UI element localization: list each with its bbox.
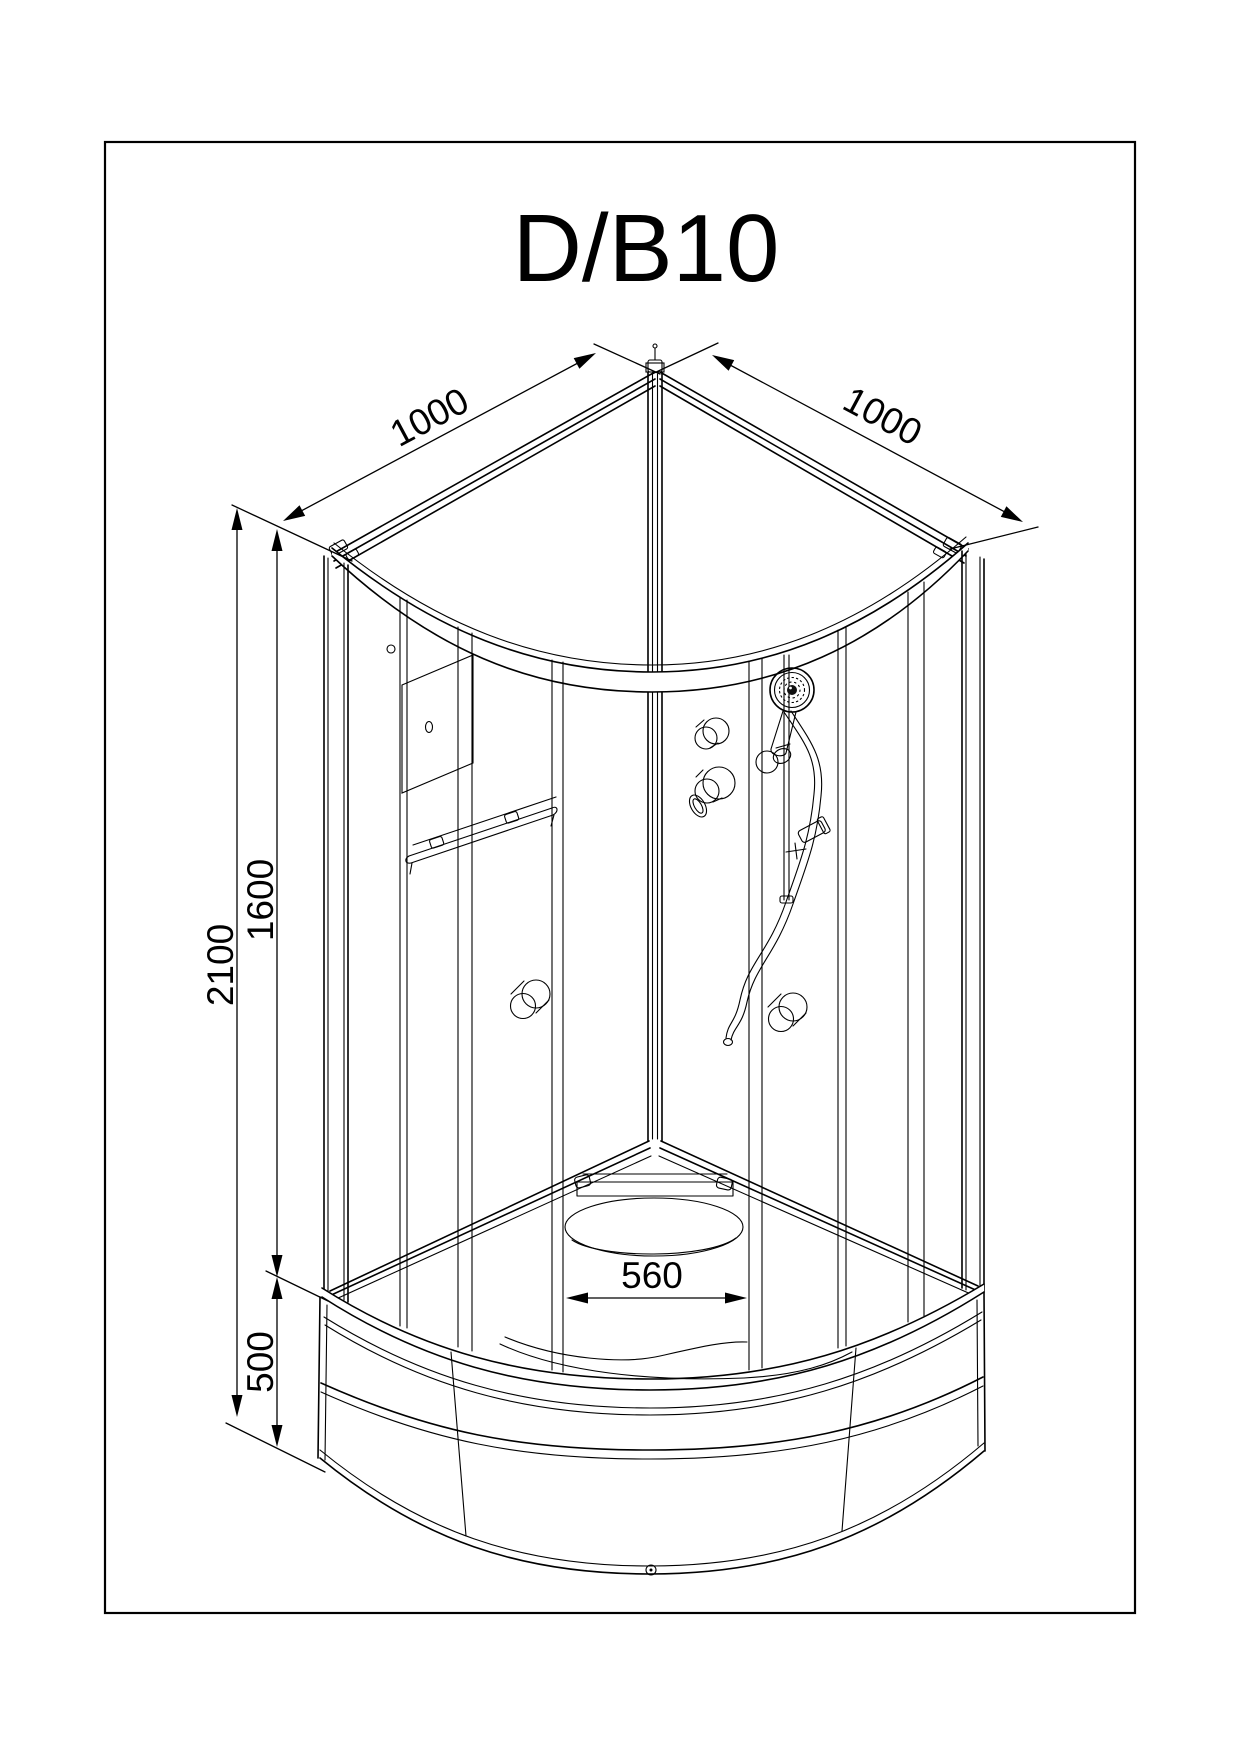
dimension-cabin-height-1600: 1600 — [240, 529, 283, 1277]
shower-head — [770, 668, 814, 712]
dimension-inner-width-560: 560 — [566, 1255, 747, 1304]
dimension-total-height-2100: 2100 — [200, 508, 243, 1417]
seat-edge — [505, 1337, 747, 1360]
back-threshold — [574, 1174, 733, 1196]
drawing-title: D/B10 — [513, 195, 780, 302]
dim-label-total-height: 2100 — [200, 924, 241, 1006]
corner-shelf — [406, 797, 557, 874]
body-jet-right — [768, 993, 807, 1032]
dimension-top-right-1000: 1000 — [712, 355, 1023, 522]
diverter-knob — [703, 718, 729, 744]
mixer-lever — [686, 792, 710, 820]
tray-floor-recess — [565, 1198, 743, 1256]
side-edge-profiles — [324, 551, 984, 1302]
front-arc-rail — [332, 537, 968, 692]
mixer-knobs — [686, 718, 735, 820]
technical-drawing-page: D/B10 — [0, 0, 1240, 1755]
hand-shower-assembly — [724, 655, 831, 1046]
dim-label-cabin-height: 1600 — [240, 859, 281, 941]
shower-hose — [724, 711, 822, 1046]
dim-label-top-right: 1000 — [837, 379, 929, 454]
dim-label-top-left: 1000 — [383, 380, 475, 455]
dim-label-tray-height: 500 — [240, 1331, 281, 1393]
dim-label-inner-width: 560 — [621, 1255, 683, 1296]
corner-post — [646, 363, 664, 1141]
apex-cap — [648, 344, 662, 372]
dimension-top-left-1000: 1000 — [283, 353, 596, 521]
wall-hook — [387, 645, 395, 653]
shower-cabin-drawing — [318, 344, 985, 1575]
shower-tray — [318, 1284, 985, 1575]
shower-cabin-dimension-diagram: D/B10 — [0, 0, 1240, 1755]
body-jet-left — [511, 980, 551, 1019]
dimension-tray-height-500: 500 — [240, 1277, 283, 1447]
